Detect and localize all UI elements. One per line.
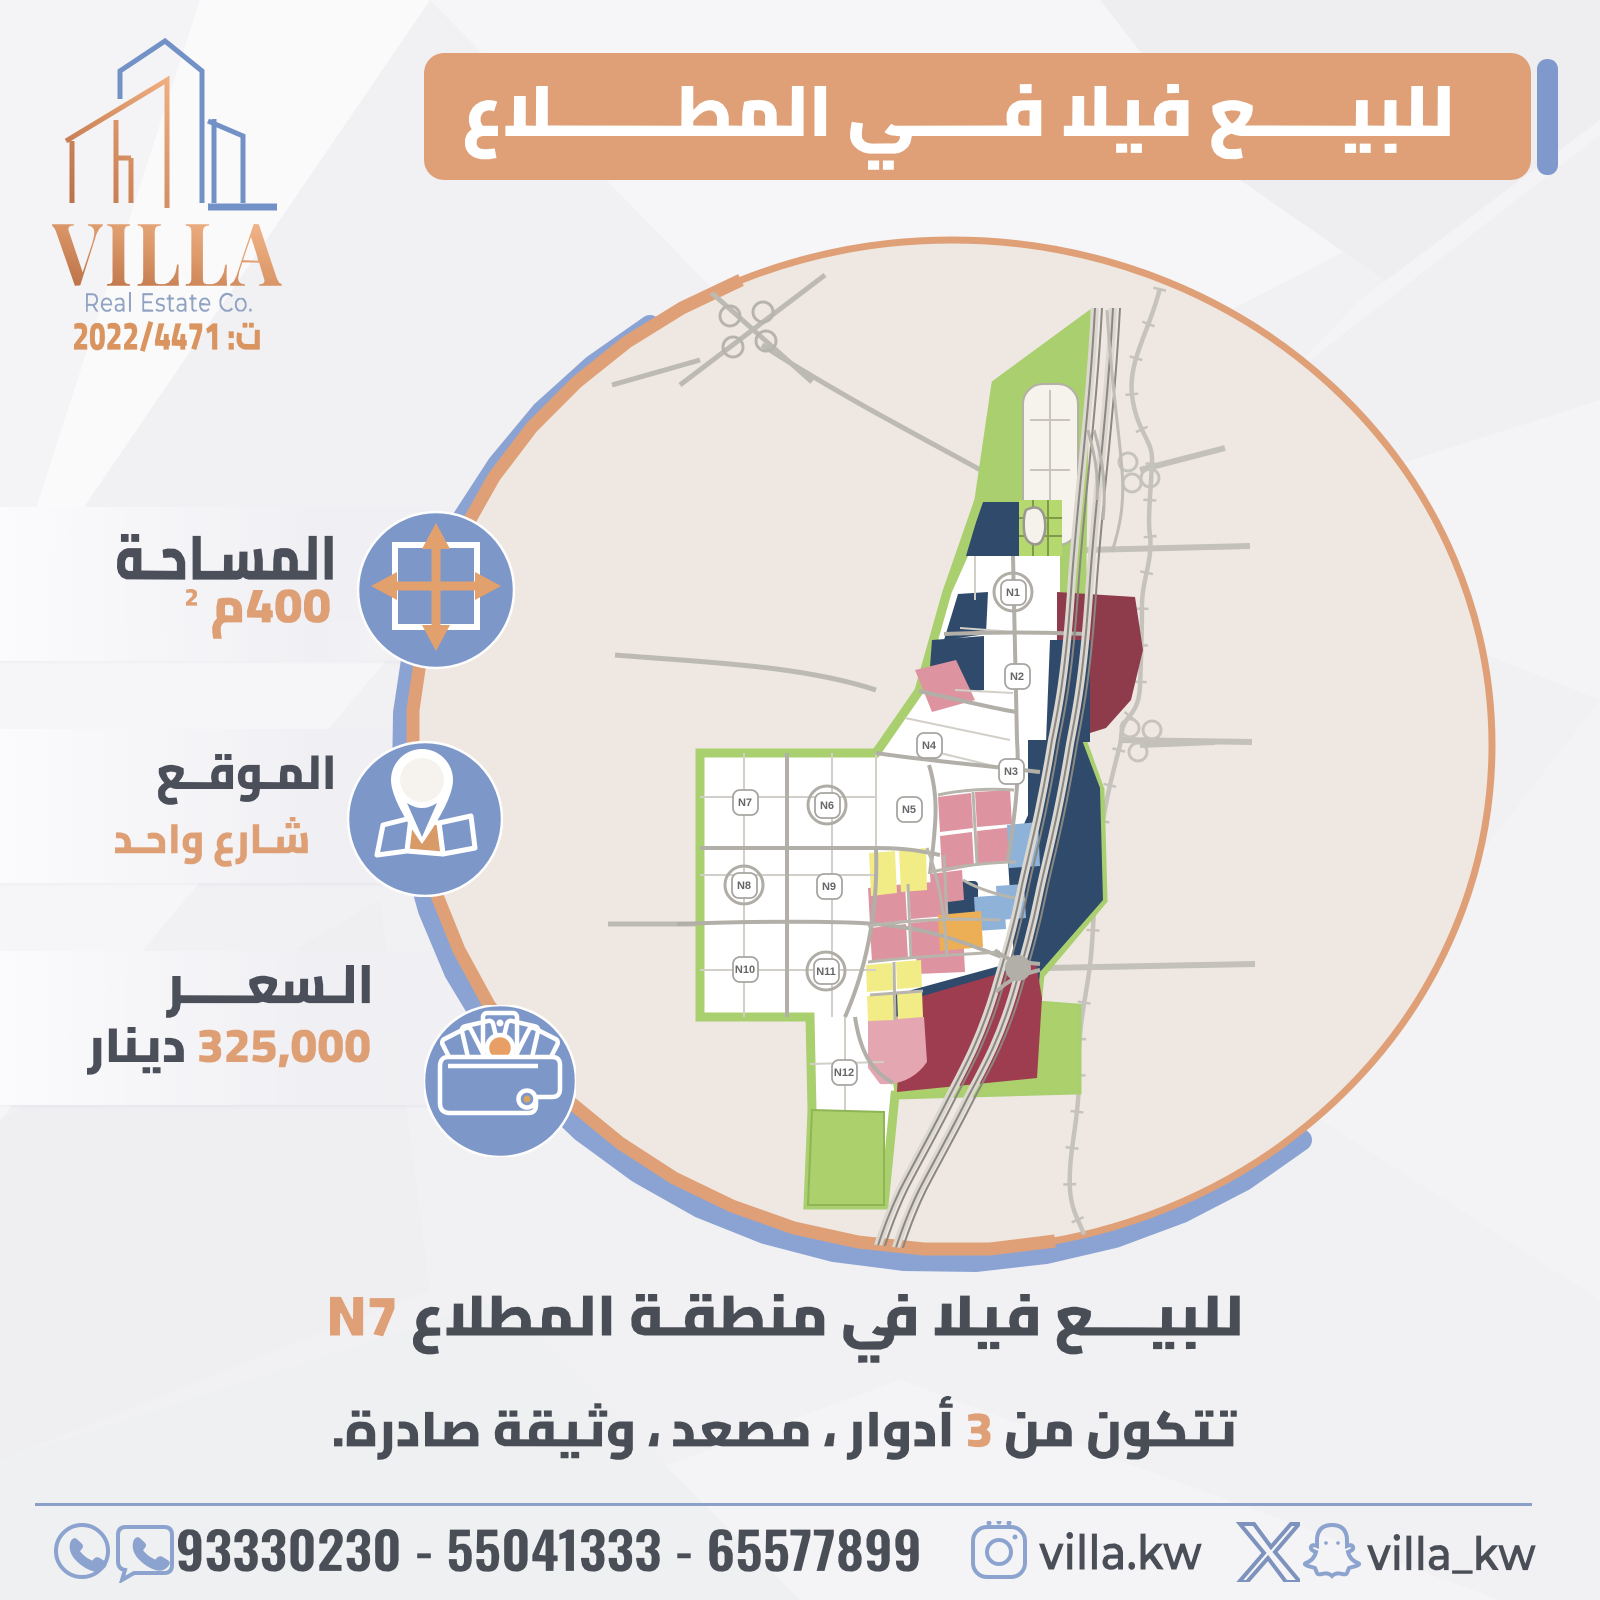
svg-text:N5: N5 [902, 804, 916, 816]
svg-text:N9: N9 [822, 881, 836, 893]
svg-text:N11: N11 [816, 966, 836, 978]
svg-text:N6: N6 [820, 800, 834, 812]
svg-text:N1: N1 [1006, 587, 1020, 599]
svg-text:N7: N7 [738, 797, 752, 809]
svg-text:N8: N8 [737, 880, 751, 892]
svg-text:N3: N3 [1004, 766, 1018, 778]
svg-text:N10: N10 [735, 964, 755, 976]
svg-text:N4: N4 [922, 740, 937, 752]
svg-text:N12: N12 [834, 1067, 854, 1079]
svg-text:N2: N2 [1010, 671, 1024, 683]
